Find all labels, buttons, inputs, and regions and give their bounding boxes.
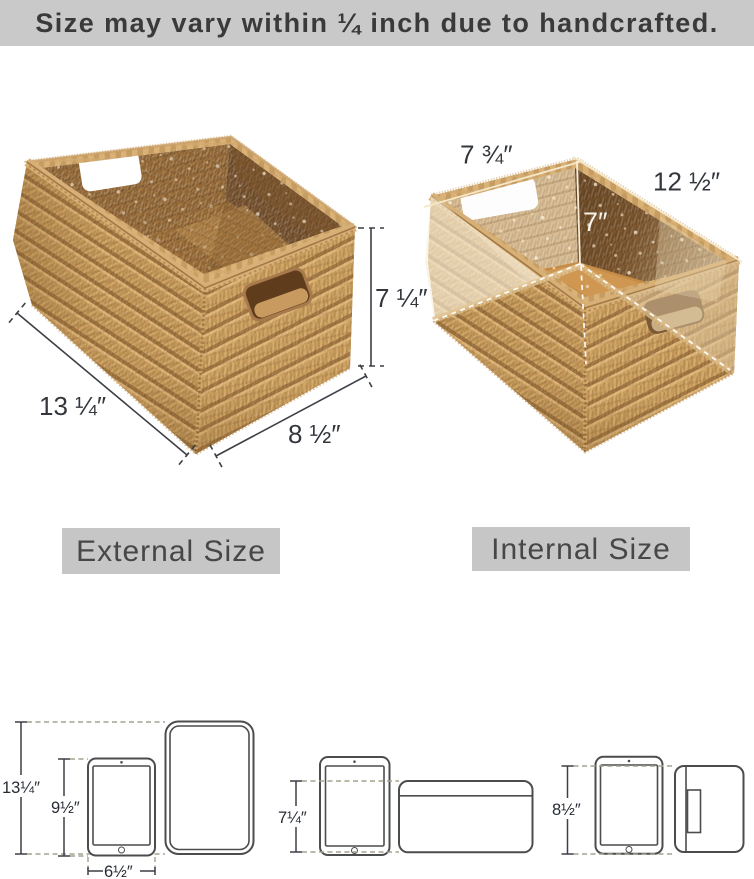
- svg-text:8½″: 8½″: [552, 801, 581, 819]
- svg-text:9½″: 9½″: [51, 799, 80, 817]
- svg-text:6½″: 6½″: [104, 863, 133, 879]
- svg-text:Internal Size: Internal Size: [491, 533, 671, 566]
- svg-text:External Size: External Size: [76, 535, 266, 568]
- svg-text:7 ¼″: 7 ¼″: [375, 283, 428, 313]
- svg-text:12 ½″: 12 ½″: [653, 167, 720, 197]
- svg-text:13 ¼″: 13 ¼″: [39, 391, 106, 421]
- svg-text:7¼″: 7¼″: [278, 809, 307, 827]
- svg-text:7 ¾″: 7 ¾″: [460, 140, 513, 170]
- svg-text:8 ½″: 8 ½″: [288, 419, 341, 449]
- svg-text:13¼″: 13¼″: [2, 779, 40, 797]
- svg-text:7″: 7″: [583, 207, 608, 237]
